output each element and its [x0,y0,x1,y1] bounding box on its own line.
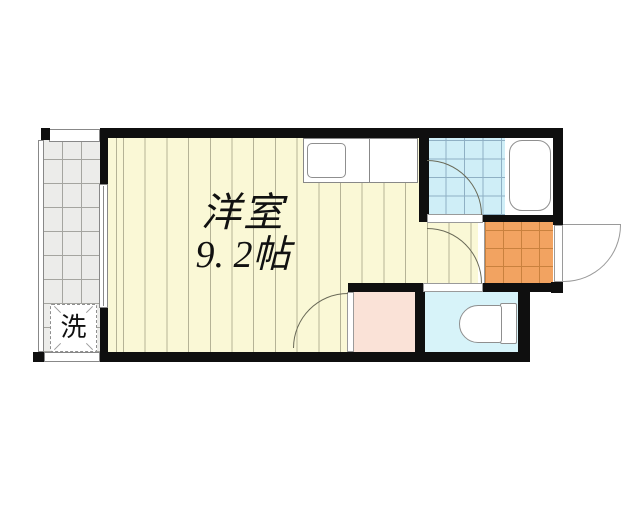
bathroom-door-opening [427,214,483,223]
wall-top [100,128,563,138]
genkan-floor [485,222,553,285]
wall-toilet-right [518,285,530,362]
balcony-rail-left [38,140,44,352]
wall-left-upper [100,128,108,184]
toilet-tank [500,303,517,344]
wall-closet-toilet-divider [415,283,425,352]
bathtub-icon [509,140,551,211]
closet-floor [354,292,415,352]
balcony-post-top [41,128,50,140]
washer-label: 洗 [50,304,97,352]
balcony-rail-top [49,129,100,142]
room-name-label: 洋室 [173,192,313,236]
balcony-post-bottom [33,352,44,362]
toilet-icon [459,305,502,343]
kitchen-counter-divider [369,138,370,183]
entrance-door-arc [563,225,621,282]
entrance-door-opening [554,225,563,282]
room-size-label: 9. 2帖 [168,236,318,282]
toilet-door-opening [423,283,483,292]
wall-right-bathroom [553,128,563,225]
window-balcony-centerline [103,186,104,306]
floor-plan: 洗 洋室 9. 2帖 [0,0,640,512]
wall-bottom [100,352,530,362]
balcony-rail-bottom [44,352,100,362]
closet-door-strip [347,292,354,352]
kitchen-sink-icon [307,143,346,178]
